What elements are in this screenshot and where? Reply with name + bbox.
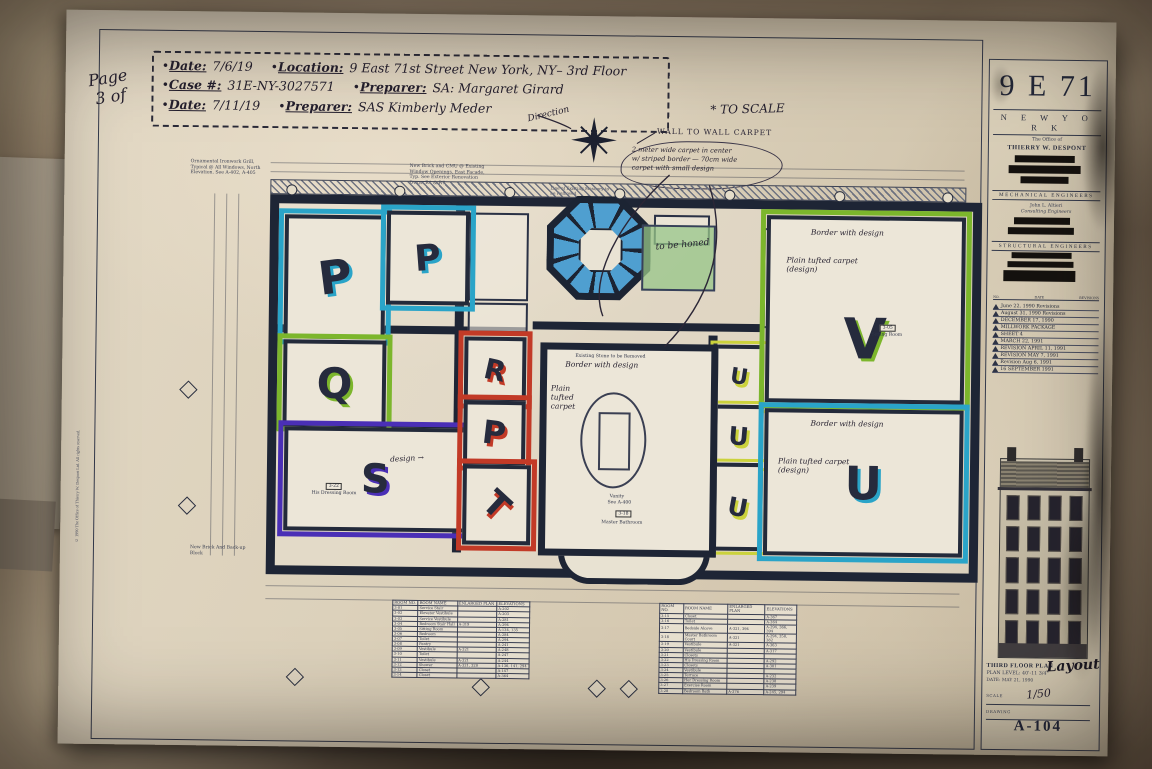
mechanical-engineers-heading: MECHANICAL ENGINEERS <box>992 190 1100 201</box>
column-grid-marker <box>724 190 735 201</box>
bathtub-fixture <box>580 392 647 489</box>
vanity-ref: See A-400 <box>608 500 632 505</box>
revision-text: 16 SEPTEMBER 1991 <box>1000 367 1054 373</box>
room-label: Master Bathroom <box>601 520 642 526</box>
border-design-note: Border with design <box>811 228 884 238</box>
marker-letter: U <box>727 421 750 452</box>
redaction-bar <box>1015 155 1075 163</box>
design-note: design → <box>390 453 424 464</box>
revision-triangle-icon <box>993 331 999 336</box>
col-room-no: ROOM NO. <box>393 600 418 606</box>
revision-text: June 22, 1990 Revisions <box>1001 304 1060 310</box>
column-grid-marker <box>614 188 625 199</box>
vestibule-room <box>468 213 529 302</box>
case-number-label: Case #: <box>169 77 222 93</box>
redaction-bar <box>1008 227 1074 235</box>
redaction-bar <box>1009 165 1081 174</box>
underlying-sheet-corner <box>0 498 56 571</box>
revision-triangle-icon <box>993 317 999 322</box>
case-number-value: 31E-NY-3027571 <box>227 78 334 94</box>
master-bathroom: Existing Stone to be Removed Border with… <box>538 342 719 557</box>
marker-letter: T <box>474 482 518 527</box>
col-room-no: ROOM NO. <box>660 603 684 613</box>
revision-text: August 31, 1990 Revisions <box>1001 311 1066 317</box>
octagonal-stair-hall <box>546 196 651 301</box>
room-marked-P: P <box>386 211 470 306</box>
revision-triangle-icon <box>992 359 998 364</box>
col-room-name: ROOM NAME <box>683 604 727 614</box>
room-marked-T: T <box>462 464 531 545</box>
marker-letter: U <box>725 491 750 523</box>
room-label: Sitting Room <box>872 332 903 337</box>
room-marked-P: P <box>284 214 387 339</box>
col-enlarged-plan: ENLARGED PLAN <box>728 604 765 614</box>
sheet-number: A-104 <box>986 718 1090 736</box>
redaction-bar <box>1003 270 1075 282</box>
to-be-honed-note: to be honed <box>655 239 710 254</box>
stair-landing <box>578 228 623 273</box>
copyright-note: © 1990 The Office of Thierry W. Despont … <box>74 430 80 543</box>
wall-to-wall-carpet-note: WALL TO WALL CARPET <box>657 127 772 137</box>
room-marked-U: U <box>712 463 763 552</box>
redaction-bar <box>1020 176 1068 184</box>
marker-letter: R <box>481 351 509 388</box>
to-scale-note: * TO SCALE <box>710 101 785 117</box>
revision-triangle-icon <box>992 345 998 350</box>
rev-col-revisions: REVISIONS <box>1079 296 1099 300</box>
revision-triangle-icon <box>993 338 999 343</box>
marker-letter: P <box>481 413 509 453</box>
column-grid-marker <box>286 184 297 195</box>
revision-text: MILLWORK PACKAGE <box>1001 325 1056 331</box>
facade-base <box>999 643 1087 658</box>
border-design-note: Border with design <box>565 360 638 370</box>
photo-of-architectural-floor-plan: Page 3 of •Date: 7/6/19 •Location: 9 Eas… <box>0 0 1152 769</box>
preparer2-label: Preparer: <box>285 98 352 114</box>
redaction-bar <box>1012 252 1072 259</box>
room-marked-S-his-dressing-room: S 3-22 His Dressing Room design → <box>283 426 467 532</box>
room-label: His Dressing Room <box>312 491 357 497</box>
revision-triangle-icon <box>992 352 998 357</box>
date2-label: Date: <box>169 97 206 112</box>
compass-rose-icon <box>570 116 619 165</box>
date-value: 7/6/19 <box>212 58 252 73</box>
building-facade-drawing <box>998 458 1090 659</box>
location-value: 9 East 71st Street New York, NY– 3rd Flo… <box>349 60 626 78</box>
facade-windows <box>1005 495 1083 646</box>
revision-triangle-icon <box>993 310 999 315</box>
revision-row: 16 SEPTEMBER 1991 <box>992 366 1098 374</box>
drawing-date: DATE: MAY 21, 1990 <box>986 678 1076 685</box>
revision-text: Revision Aug 6, 1991 <box>1000 360 1052 366</box>
revision-text: REVISION APRIL 11, 1991 <box>1000 346 1066 352</box>
room-schedule-table-right: ROOM NO. ROOM NAME ENLARGED PLAN ELEVATI… <box>658 603 797 695</box>
room-marked-U: U Border with design Plain tufted carpet… <box>763 408 964 557</box>
marker-letter: Q <box>316 358 352 407</box>
revision-triangle-icon <box>993 303 999 308</box>
room-marked-P: P <box>463 400 526 465</box>
project-title: 9 E 71 <box>993 69 1101 104</box>
column-grid-marker <box>834 191 845 202</box>
tub-inner <box>598 412 631 470</box>
schedule-row: 3-28Bedroom BathA-376A-245, 294 <box>659 688 796 695</box>
revision-text: REVISION MAY 7, 1991 <box>1000 353 1059 359</box>
marker-letter: U <box>728 363 749 390</box>
backup-block-note: New Brick And Back-up Block <box>190 545 250 557</box>
marker-letter: P <box>413 237 442 280</box>
revision-text: SHEET 4 <box>1001 332 1023 337</box>
revision-triangle-icon <box>993 324 999 329</box>
room-number: 3-05 <box>880 325 896 332</box>
redaction-bar <box>1014 217 1070 225</box>
vestibule-room <box>468 303 528 334</box>
column-grid-marker <box>504 187 515 198</box>
preparer1-value: SA: Margaret Girard <box>432 80 563 97</box>
rev-col-date: DATE <box>1034 295 1044 299</box>
mansard-roof <box>1001 461 1089 488</box>
architect-name: THIERRY W. DESPONT <box>993 144 1101 152</box>
room-marked-Q: Q <box>282 339 386 426</box>
column-grid-marker <box>394 186 405 197</box>
vanity-label: Vanity <box>610 494 625 499</box>
page-number-note: Page 3 of <box>87 65 132 109</box>
ornamental-ironwork-note: Ornamental Ironwork Grill, Typical @ All… <box>190 159 266 177</box>
room-marked-R: R <box>464 337 527 404</box>
column-grid-marker <box>942 192 953 203</box>
chimney <box>1007 447 1016 461</box>
cornice <box>998 487 1092 491</box>
marker-letter: P <box>315 248 355 306</box>
room-number: 3-22 <box>326 483 342 490</box>
room-number: 3-18 <box>615 510 631 517</box>
chimney <box>1074 448 1083 462</box>
blueprint-sheet: Page 3 of •Date: 7/6/19 •Location: 9 Eas… <box>58 10 1117 757</box>
layout-handwritten-note: Layout <box>1046 656 1100 675</box>
room-marked-V-sitting-room: V Border with design Plain tufted carpet… <box>765 215 966 404</box>
room-schedule-table-left: ROOM NO. ROOM NAME ENLARGED PLAN ELEVATI… <box>391 600 530 680</box>
revision-text: MARCH 22, 1991 <box>1001 339 1044 345</box>
marker-letter: S <box>361 456 390 502</box>
col-elevations: ELEVATIONS <box>765 605 797 615</box>
preparer2-value: SAS Kimberly Meder <box>358 99 491 116</box>
location-label: Location: <box>278 59 344 75</box>
redaction-bar <box>1007 261 1073 268</box>
revision-list: June 22, 1990 Revisions August 31, 1990 … <box>992 303 1099 374</box>
room-marked-U: U <box>714 345 765 410</box>
stone-to-be-honed-area: to be honed <box>641 225 716 292</box>
revision-triangle-icon <box>992 366 998 371</box>
revision-text: DECEMBER 17, 1990 <box>1001 318 1054 324</box>
preparer1-label: Preparer: <box>360 80 427 96</box>
room-marked-U: U <box>713 405 764 468</box>
date-label: Date: <box>169 58 206 73</box>
date2-value: 7/11/19 <box>212 97 260 113</box>
carpet-note: Plain tufted carpet (design) <box>778 456 858 475</box>
structural-engineers-heading: STRUCTURAL ENGINEERS <box>992 241 1100 252</box>
marker-letter: V <box>843 307 887 373</box>
rev-col-no: NO. <box>993 295 999 299</box>
border-design-note: Border with design <box>810 419 883 429</box>
carpet-note: Plain tufted carpet (design) <box>786 255 876 274</box>
scale-handwritten-value: 1/50 <box>1026 686 1052 701</box>
project-city: N E W Y O R K <box>993 109 1101 136</box>
schedule-row: 3-14ClosetA-364 <box>392 672 529 679</box>
